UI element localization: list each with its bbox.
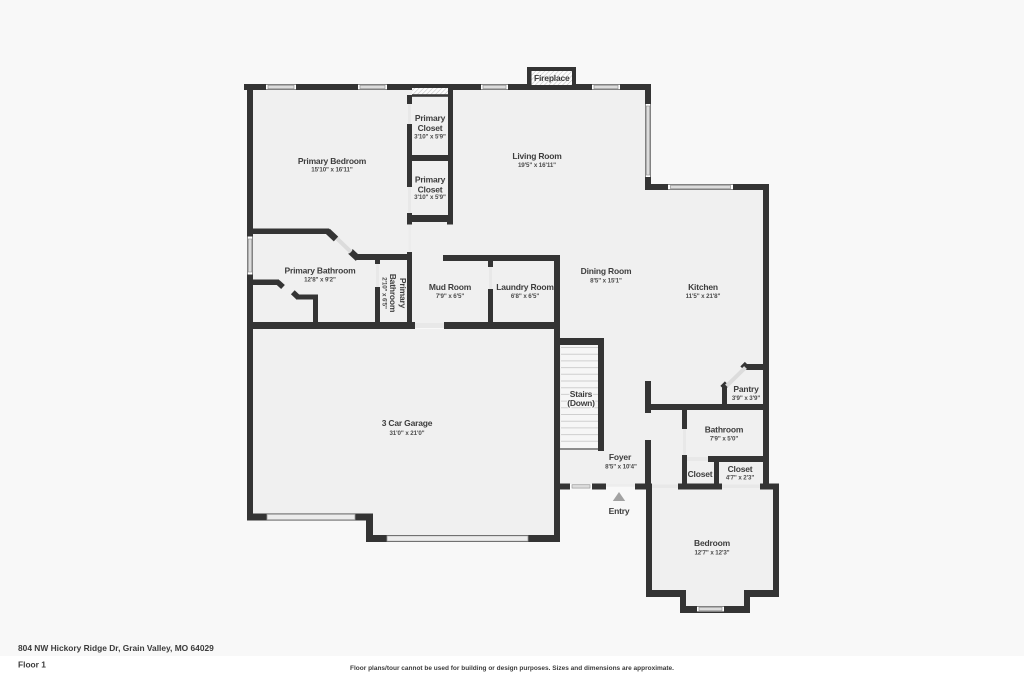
svg-text:Kitchen: Kitchen <box>688 282 718 292</box>
svg-text:7'9" x 5'0": 7'9" x 5'0" <box>710 436 739 443</box>
svg-text:3'10" x 5'9": 3'10" x 5'9" <box>414 194 446 201</box>
svg-text:3'9" x 3'9": 3'9" x 3'9" <box>732 395 761 402</box>
svg-text:7'9" x 6'5": 7'9" x 6'5" <box>436 293 465 300</box>
svg-text:11'5" x 21'8": 11'5" x 21'8" <box>686 293 721 300</box>
svg-text:Mud Room: Mud Room <box>429 282 472 292</box>
svg-text:8'5" x 15'1": 8'5" x 15'1" <box>590 278 622 285</box>
svg-text:Closet: Closet <box>418 185 443 195</box>
svg-text:Laundry Room: Laundry Room <box>496 282 554 292</box>
svg-text:4'7" x 2'3": 4'7" x 2'3" <box>726 475 755 482</box>
svg-text:Floor plans/tour cannot be use: Floor plans/tour cannot be used for buil… <box>350 665 674 672</box>
svg-text:Foyer: Foyer <box>609 452 632 462</box>
svg-text:Closet: Closet <box>688 469 713 479</box>
svg-text:Floor 1: Floor 1 <box>18 660 46 670</box>
svg-text:Fireplace: Fireplace <box>534 73 570 83</box>
svg-text:19'5" x 16'11": 19'5" x 16'11" <box>518 162 556 169</box>
svg-text:Primary: Primary <box>415 113 446 123</box>
svg-text:6'8" x 6'5": 6'8" x 6'5" <box>511 293 540 300</box>
svg-text:Primary: Primary <box>398 278 408 309</box>
svg-text:8'5" x 10'4": 8'5" x 10'4" <box>605 464 637 471</box>
svg-text:Bathroom: Bathroom <box>705 425 744 435</box>
svg-text:Entry: Entry <box>609 506 630 516</box>
svg-text:Living Room: Living Room <box>512 151 562 161</box>
svg-text:Primary Bedroom: Primary Bedroom <box>298 156 367 166</box>
svg-text:12'8" x 9'2": 12'8" x 9'2" <box>304 277 336 284</box>
svg-text:Pantry: Pantry <box>733 384 759 394</box>
svg-text:Bathroom: Bathroom <box>388 274 398 313</box>
svg-text:15'10" x 16'11": 15'10" x 16'11" <box>311 167 353 174</box>
svg-text:Primary: Primary <box>415 175 446 185</box>
svg-text:Closet: Closet <box>728 464 753 474</box>
svg-text:3 Car Garage: 3 Car Garage <box>382 418 433 428</box>
svg-text:31'0" x 21'0": 31'0" x 21'0" <box>389 430 424 437</box>
svg-text:12'7" x 12'3": 12'7" x 12'3" <box>694 550 729 557</box>
svg-text:Closet: Closet <box>418 123 443 133</box>
svg-text:3'10" x 5'9": 3'10" x 5'9" <box>414 134 446 141</box>
svg-text:Dining Room: Dining Room <box>581 266 632 276</box>
svg-text:(Down): (Down) <box>567 398 595 408</box>
svg-text:Bedroom: Bedroom <box>694 538 731 548</box>
svg-text:Primary Bathroom: Primary Bathroom <box>285 266 357 276</box>
svg-text:2'10" x 6'5": 2'10" x 6'5" <box>381 277 388 309</box>
svg-text:804 NW Hickory Ridge Dr, Grain: 804 NW Hickory Ridge Dr, Grain Valley, M… <box>18 643 214 653</box>
